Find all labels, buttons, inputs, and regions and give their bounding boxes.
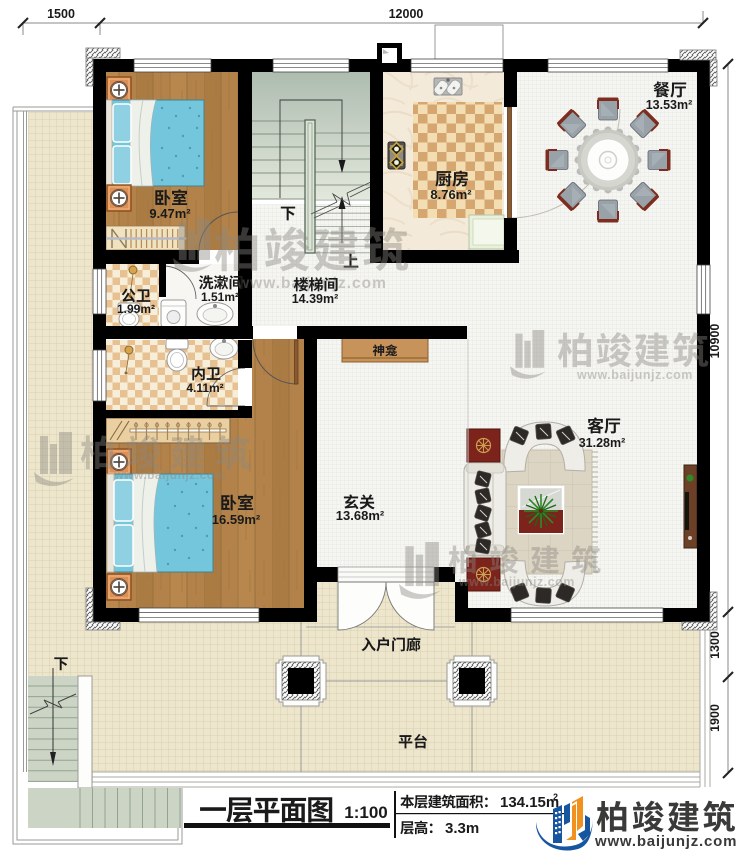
- svg-text:13.53m²: 13.53m²: [646, 98, 693, 112]
- svg-text:8.76m²: 8.76m²: [430, 187, 472, 202]
- svg-text:www.baijunjz.com: www.baijunjz.com: [594, 833, 737, 850]
- svg-text:4.11m²: 4.11m²: [186, 381, 223, 395]
- svg-text:1500: 1500: [47, 7, 75, 21]
- svg-text:1:100: 1:100: [344, 803, 387, 822]
- svg-text:2: 2: [553, 792, 558, 802]
- svg-text:www.baijunjz.com: www.baijunjz.com: [113, 468, 226, 482]
- svg-text:www.baijunjz.com: www.baijunjz.com: [576, 368, 693, 382]
- svg-text:10900: 10900: [708, 324, 722, 359]
- svg-text:9.47m²: 9.47m²: [149, 206, 191, 221]
- svg-text:134.15m: 134.15m: [500, 794, 559, 811]
- svg-text:1.51m²: 1.51m²: [201, 290, 239, 304]
- svg-text:1.99m²: 1.99m²: [117, 302, 155, 316]
- svg-text:31.28m²: 31.28m²: [579, 436, 626, 450]
- svg-text:3.3m: 3.3m: [445, 820, 479, 837]
- svg-text:13.68m²: 13.68m²: [336, 508, 385, 523]
- svg-text:14.39m²: 14.39m²: [292, 292, 339, 306]
- svg-text:16.59m²: 16.59m²: [212, 512, 261, 527]
- svg-text:www.baijunjz.com: www.baijunjz.com: [458, 575, 575, 589]
- svg-text:12000: 12000: [389, 7, 424, 21]
